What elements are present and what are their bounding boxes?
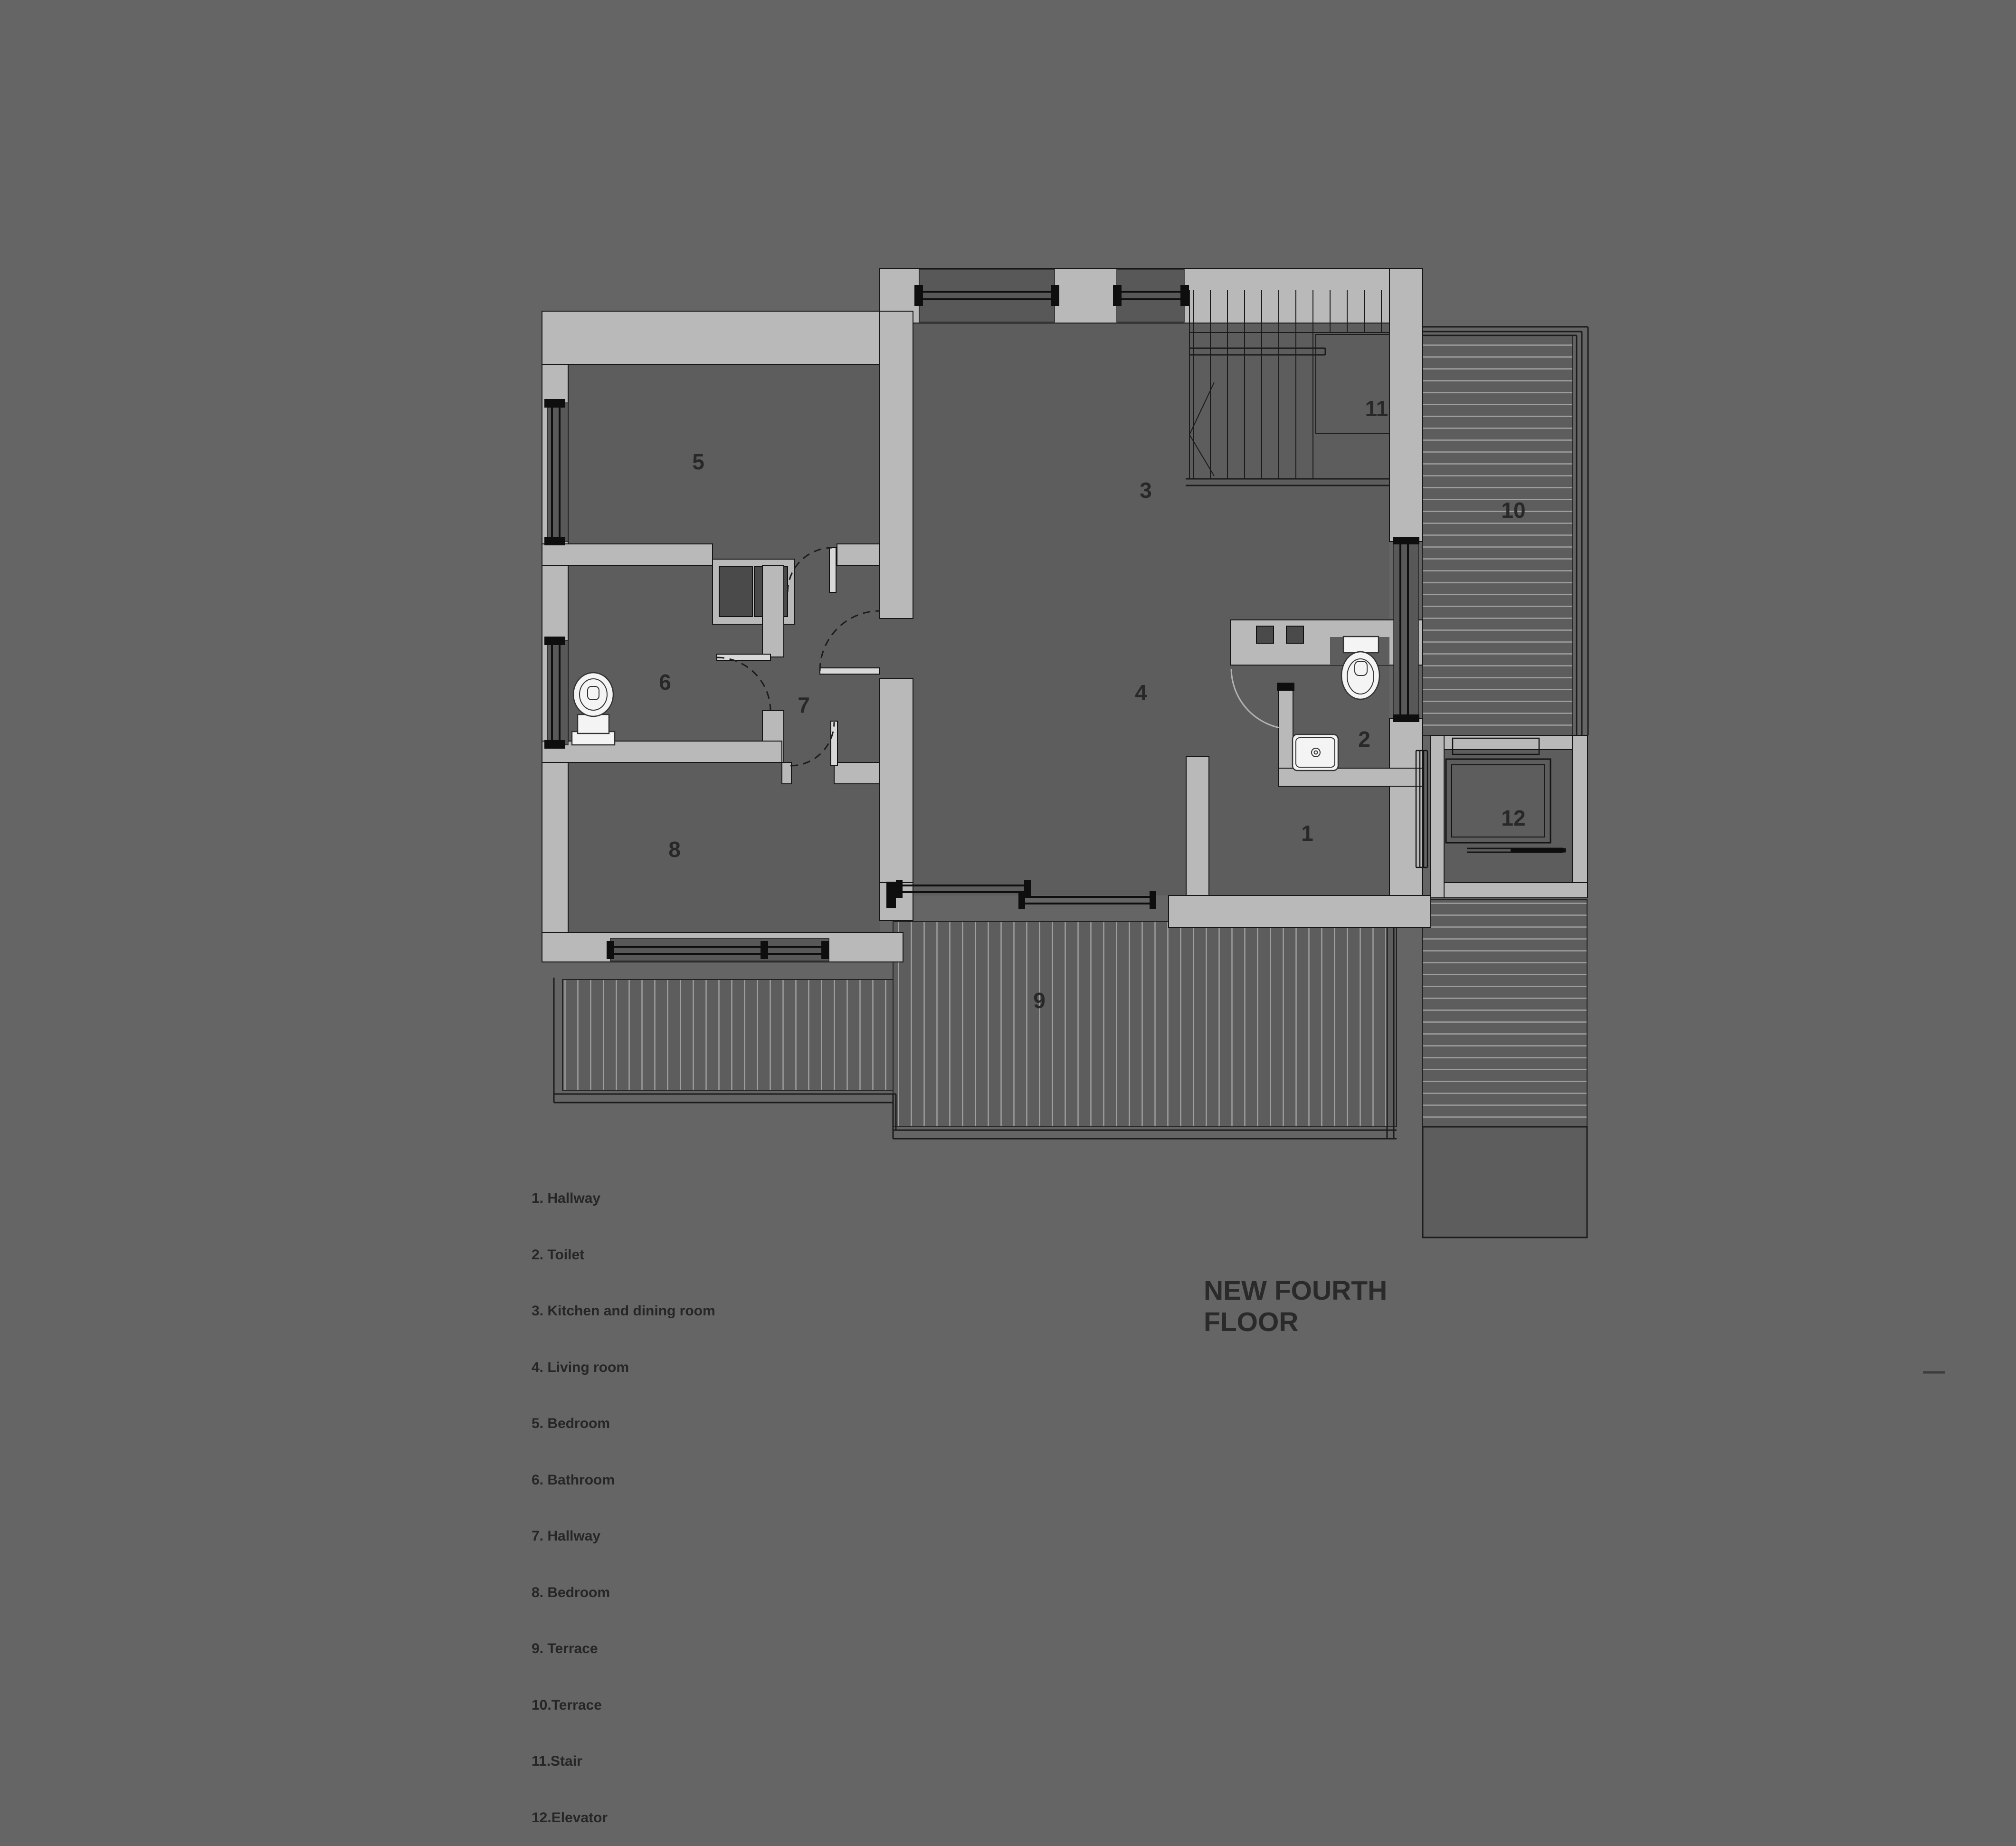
room-label-2: 2 [1358,727,1370,752]
legend-item: 7. Hallway [532,1527,715,1546]
drawing-title: NEW FOURTH FLOOR [1204,1275,1489,1338]
legend-item: 9. Terrace [532,1639,715,1658]
wc-toilet [1341,637,1379,699]
wall-7-8-right [834,762,880,784]
wall-room1-left [1186,756,1209,895]
legend-item: 10.Terrace [532,1696,715,1715]
legend-item: 12.Elevator [532,1808,715,1827]
room-label-12: 12 [1501,806,1525,830]
terrace-10-lower-slab [1423,1127,1587,1237]
room-label-11: 11 [1365,396,1388,421]
legend-item: 5. Bedroom [532,1414,715,1433]
wall-spine-lower [880,678,913,883]
room-label-3: 3 [1140,478,1152,503]
window-room3-top-2 [1113,269,1189,322]
wall-elevator-right [1572,735,1588,898]
legend-item: 3. Kitchen and dining room [532,1302,715,1321]
room-label-6: 6 [659,670,671,695]
legend-item: 4. Living room [532,1358,715,1377]
room-label-9: 9 [1033,988,1046,1013]
room-label-4: 4 [1135,680,1147,705]
legend: 1. Hallway 2. Toilet 3. Kitchen and dini… [532,1151,715,1846]
legend-item: 11.Stair [532,1752,715,1771]
terrace-10-deck-lower [1423,899,1587,1127]
bathroom-toilet [572,673,615,745]
room-label-8: 8 [668,837,681,862]
room-label-10: 10 [1501,498,1525,523]
wall-spine-upper [880,311,913,619]
window-room3-top-1 [914,269,1059,322]
wall-right-upper [1389,268,1423,542]
window-room5-left [544,399,568,545]
cooktop-burner-icon [1286,626,1303,643]
window-room8-bottom [607,938,829,961]
window-room6-left [544,637,568,749]
window-right-terrace [1393,537,1419,722]
cooktop-burner-icon [1256,626,1274,643]
room-label-7: 7 [798,693,810,717]
wall-elevator-top [1431,735,1588,750]
wall-5-6 [542,544,713,565]
wall-bottom-right [1169,895,1431,927]
terrace-10-deck-upper [1423,335,1573,735]
floor-plan-drawing: 5 6 7 8 3 4 2 1 11 12 10 9 [0,0,2016,1425]
wall-elevator-left [1431,735,1444,898]
wall-7-8-left [782,762,791,784]
terrace-9-deck-main [893,922,1397,1127]
room-label-1: 1 [1301,821,1313,846]
legend-item: 2. Toilet [532,1246,715,1265]
legend-item: 1. Hallway [532,1189,715,1208]
door-jamb-room2 [1277,683,1294,691]
wall-room5-top [542,311,896,364]
legend-item: 8. Bedroom [532,1583,715,1602]
wc-sink [1293,734,1338,771]
terrace-9-deck-left [562,980,893,1090]
room-label-5: 5 [692,449,704,474]
wall-elevator-bottom [1431,883,1588,898]
wall-6-7-upper [762,565,784,657]
sink-icon [1293,734,1338,771]
legend-item: 6. Bathroom [532,1471,715,1490]
wall-5-7 [837,544,880,565]
closet-door-left [719,566,752,617]
toilet-icon [1343,637,1379,653]
